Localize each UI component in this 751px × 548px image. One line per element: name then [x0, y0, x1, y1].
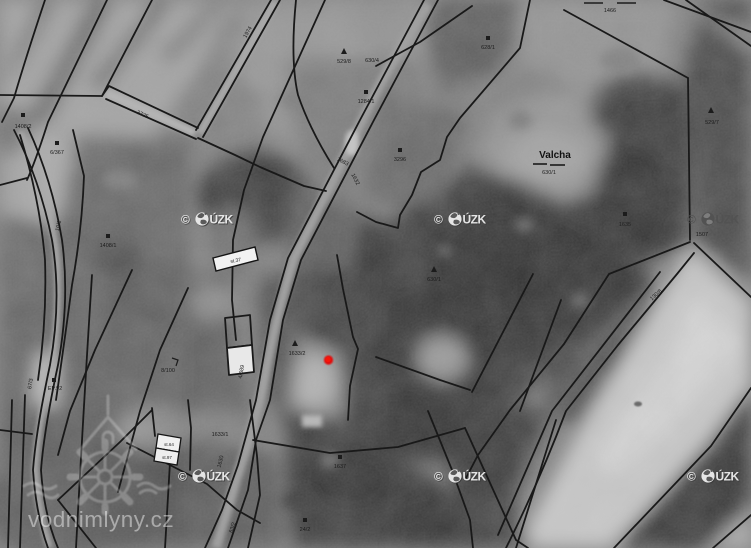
svg-text:6/367: 6/367 [50, 150, 64, 156]
svg-text:8/100: 8/100 [161, 368, 175, 374]
svg-text:630/1: 630/1 [427, 277, 441, 283]
svg-text:1633/2: 1633/2 [289, 351, 306, 357]
svg-text:st.97: st.97 [162, 455, 172, 460]
svg-text:Valcha: Valcha [539, 150, 571, 161]
svg-text:vodnimlyny.cz: vodnimlyny.cz [28, 507, 174, 532]
svg-text:529/8: 529/8 [337, 59, 351, 65]
svg-text:24/2: 24/2 [300, 527, 311, 533]
svg-text:628/1: 628/1 [481, 45, 495, 51]
svg-text:1633/1: 1633/1 [212, 432, 229, 438]
svg-text:1637: 1637 [334, 464, 346, 470]
svg-text:st.64: st.64 [164, 442, 174, 447]
svg-text:1466: 1466 [604, 8, 616, 14]
svg-text:630/1: 630/1 [542, 170, 556, 176]
svg-text:1408/1: 1408/1 [100, 243, 117, 249]
svg-text:1635: 1635 [619, 222, 631, 228]
svg-text:1284/1: 1284/1 [358, 99, 375, 105]
svg-text:1408/2: 1408/2 [15, 124, 32, 130]
svg-text:630/4: 630/4 [365, 58, 379, 64]
svg-text:EP.92: EP.92 [48, 386, 62, 392]
svg-text:1507: 1507 [696, 232, 708, 238]
svg-text:3296: 3296 [394, 157, 406, 163]
svg-text:529/7: 529/7 [705, 120, 719, 126]
